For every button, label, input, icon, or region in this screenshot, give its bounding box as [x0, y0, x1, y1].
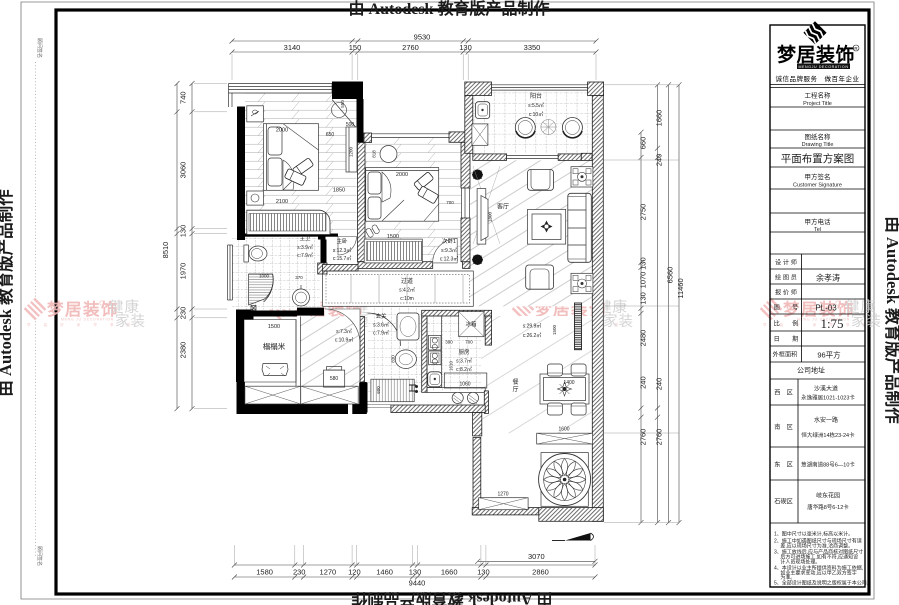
- svg-text:2750: 2750: [639, 204, 648, 221]
- svg-text:诚信品牌服务 做百年企业: 诚信品牌服务 做百年企业: [776, 74, 860, 83]
- svg-text:南 区: 南 区: [774, 423, 793, 431]
- svg-text:西 区: 西 区: [774, 390, 793, 397]
- svg-text:c:12.3㎡: c:12.3㎡: [440, 256, 459, 263]
- svg-text:130: 130: [409, 568, 422, 577]
- svg-text:由 Autodesk 教育版产品制作: 由 Autodesk 教育版产品制作: [883, 216, 899, 424]
- svg-text:顾问签名: 顾问签名: [36, 546, 43, 566]
- svg-text:s:4.2㎡: s:4.2㎡: [399, 287, 415, 294]
- svg-text:3140: 3140: [284, 43, 301, 52]
- svg-text:家装: 家装: [603, 313, 634, 330]
- svg-text:1580: 1580: [256, 568, 273, 577]
- svg-text:c:8.2㎡: c:8.2㎡: [456, 366, 472, 373]
- svg-text:740: 740: [179, 91, 188, 104]
- svg-text:主卧: 主卧: [336, 237, 348, 245]
- svg-text:设 计 师: 设 计 师: [775, 259, 797, 267]
- svg-text:1500: 1500: [552, 324, 557, 335]
- svg-text:s:7.3㎡: s:7.3㎡: [336, 328, 352, 335]
- svg-text:700: 700: [446, 200, 454, 205]
- svg-text:公司地址: 公司地址: [797, 366, 825, 375]
- svg-text:c:15.7㎡: c:15.7㎡: [333, 255, 352, 262]
- svg-text:8510: 8510: [161, 242, 170, 259]
- svg-text:1460: 1460: [376, 568, 393, 577]
- svg-text:240: 240: [655, 378, 664, 391]
- svg-text:c:7.9㎡: c:7.9㎡: [297, 252, 313, 259]
- svg-text:1070: 1070: [639, 272, 648, 289]
- svg-text:葱湖南道88号6—10卡: 葱湖南道88号6—10卡: [801, 461, 855, 469]
- svg-text:6560: 6560: [666, 267, 675, 284]
- svg-text:96平方: 96平方: [817, 350, 841, 360]
- svg-text:130: 130: [639, 292, 648, 305]
- svg-text:2000: 2000: [276, 128, 288, 134]
- svg-text:5、全部设计图纸及说明之版权属于本公司,: 5、全部设计图纸及说明之版权属于本公司,: [774, 580, 868, 587]
- svg-text:1200: 1200: [349, 146, 354, 157]
- svg-text:餐: 餐: [512, 378, 518, 386]
- svg-text:Project Title: Project Title: [803, 101, 832, 107]
- svg-text:1、图中尺寸以毫米计,标高以米计。: 1、图中尺寸以毫米计,标高以米计。: [774, 531, 853, 538]
- svg-text:顾问签名: 顾问签名: [36, 38, 43, 58]
- svg-text:2760: 2760: [655, 429, 664, 446]
- svg-text:梦居装饰: 梦居装饰: [777, 43, 855, 66]
- svg-text:厅: 厅: [512, 387, 518, 394]
- svg-text:Customer Signature: Customer Signature: [793, 183, 842, 189]
- svg-text:2760: 2760: [402, 43, 419, 52]
- svg-text:2480: 2480: [639, 330, 648, 347]
- svg-text:s:12.3㎡: s:12.3㎡: [333, 247, 352, 254]
- svg-text:1500: 1500: [387, 234, 399, 240]
- svg-text:370: 370: [295, 275, 303, 280]
- svg-text:主卫: 主卫: [299, 234, 311, 242]
- svg-text:550: 550: [340, 100, 345, 108]
- svg-text:由 Autodesk 教育版产品制作: 由 Autodesk 教育版产品制作: [349, 0, 550, 18]
- svg-text:390: 390: [445, 340, 453, 345]
- svg-text:c:26.2㎡: c:26.2㎡: [523, 332, 542, 339]
- svg-text:s:3.9㎡: s:3.9㎡: [297, 244, 313, 251]
- svg-text:1400: 1400: [563, 380, 574, 386]
- svg-text:2860: 2860: [532, 568, 549, 577]
- svg-text:绘 图 员: 绘 图 员: [775, 274, 797, 282]
- svg-text:660: 660: [639, 137, 648, 150]
- svg-text:家装: 家装: [115, 313, 146, 330]
- svg-text:岐东花园: 岐东花园: [816, 492, 840, 500]
- svg-text:家装: 家装: [851, 313, 882, 330]
- svg-text:阳台: 阳台: [530, 92, 542, 100]
- svg-text:1500: 1500: [268, 324, 280, 330]
- svg-text:9440: 9440: [409, 579, 426, 588]
- svg-text:9530: 9530: [414, 32, 431, 41]
- svg-text:c:7.9㎡: c:7.9㎡: [373, 330, 389, 337]
- svg-text:日 期: 日 期: [774, 335, 799, 343]
- svg-text:余孝涛: 余孝涛: [816, 273, 840, 283]
- svg-text:恒大绿洲14栋23-24卡: 恒大绿洲14栋23-24卡: [801, 431, 855, 439]
- svg-text:1270: 1270: [497, 492, 508, 498]
- svg-text:东 区: 东 区: [774, 461, 793, 469]
- svg-text:平面布置方案图: 平面布置方案图: [781, 152, 855, 165]
- svg-text:c:10.9㎡: c:10.9㎡: [335, 337, 354, 344]
- svg-text:Drawing Title: Drawing Title: [802, 142, 834, 148]
- svg-text:永逸雅居1021-1023卡: 永逸雅居1021-1023卡: [801, 394, 855, 402]
- svg-text:130: 130: [639, 257, 648, 270]
- svg-text:计人员现场处理。: 计人员现场处理。: [774, 559, 820, 566]
- svg-text:1660: 1660: [655, 110, 664, 127]
- svg-text:甲方签名: 甲方签名: [805, 172, 831, 181]
- svg-text:报 价 师: 报 价 师: [775, 289, 797, 297]
- svg-text:s:3.7㎡: s:3.7㎡: [456, 358, 472, 365]
- svg-text:Tel: Tel: [814, 227, 821, 233]
- svg-text:1970: 1970: [179, 263, 188, 280]
- svg-text:2760: 2760: [639, 429, 648, 446]
- svg-text:沙溪大道: 沙溪大道: [814, 385, 838, 393]
- svg-text:厨房: 厨房: [458, 348, 470, 356]
- svg-text:s:29.9㎡: s:29.9㎡: [523, 323, 542, 330]
- svg-text:外框面积: 外框面积: [773, 351, 798, 359]
- svg-text:2000: 2000: [396, 172, 408, 178]
- svg-text:图纸名称: 图纸名称: [805, 132, 832, 141]
- svg-text:s:5.5㎡: s:5.5㎡: [528, 102, 544, 109]
- svg-text:1270: 1270: [320, 568, 337, 577]
- svg-text:1:75: 1:75: [820, 316, 843, 331]
- svg-text:s:9.3㎡: s:9.3㎡: [441, 247, 457, 254]
- svg-text:工程名称: 工程名称: [805, 91, 832, 100]
- svg-text:由 Autodesk 教育版产品制作: 由 Autodesk 教育版产品制作: [352, 590, 553, 605]
- svg-text:818: 818: [372, 150, 377, 158]
- svg-text:1600: 1600: [558, 427, 569, 433]
- svg-text:1000: 1000: [259, 274, 270, 279]
- svg-text:3070: 3070: [528, 552, 545, 561]
- svg-text:3060: 3060: [179, 162, 188, 179]
- svg-text:580: 580: [330, 376, 339, 382]
- svg-text:830: 830: [391, 355, 396, 363]
- svg-text:PL-03: PL-03: [815, 304, 837, 313]
- svg-text:甲方电话: 甲方电话: [805, 217, 832, 226]
- svg-text:比 例: 比 例: [774, 320, 799, 328]
- svg-text:s:3.6㎡: s:3.6㎡: [373, 322, 389, 329]
- svg-text:2100: 2100: [276, 199, 288, 205]
- svg-text:240: 240: [639, 376, 648, 389]
- svg-text:MENGJU DECORATION: MENGJU DECORATION: [798, 65, 848, 69]
- svg-text:120: 120: [348, 568, 361, 577]
- svg-text:图 号: 图 号: [774, 305, 799, 312]
- svg-text:过道: 过道: [401, 277, 413, 285]
- svg-text:2380: 2380: [179, 342, 188, 359]
- svg-text:1800: 1800: [488, 211, 493, 222]
- svg-text:11460: 11460: [676, 278, 685, 298]
- svg-text:230: 230: [293, 568, 306, 577]
- svg-text:130: 130: [179, 225, 188, 238]
- svg-text:次卧1: 次卧1: [442, 237, 456, 245]
- svg-text:650: 650: [326, 132, 335, 138]
- svg-text:c:10㎡: c:10㎡: [529, 111, 543, 118]
- svg-text:唐华路8号6-12卡: 唐华路8号6-12卡: [807, 503, 849, 511]
- svg-text:130: 130: [459, 43, 472, 52]
- svg-text:冰箱: 冰箱: [465, 320, 477, 328]
- svg-text:1060: 1060: [459, 382, 470, 388]
- svg-text:客厅: 客厅: [497, 203, 509, 211]
- svg-text:1850: 1850: [333, 188, 345, 194]
- svg-text:c:10m: c:10m: [400, 296, 414, 302]
- svg-text:1660: 1660: [441, 568, 458, 577]
- svg-text:水安一路: 水安一路: [814, 416, 838, 424]
- svg-text:榻榻米: 榻榻米: [263, 341, 286, 351]
- svg-text:600: 600: [376, 386, 381, 394]
- svg-text:石碶区: 石碶区: [774, 498, 793, 506]
- svg-text:MENG JU DECORATION: MENG JU DECORATION: [61, 318, 114, 322]
- svg-text:玄关: 玄关: [375, 312, 387, 320]
- svg-text:130: 130: [477, 568, 490, 577]
- svg-text:由 Autodesk 教育版产品制作: 由 Autodesk 教育版产品制作: [0, 189, 15, 397]
- svg-text:3350: 3350: [524, 43, 541, 52]
- svg-text:150: 150: [349, 43, 362, 52]
- svg-text:1610: 1610: [449, 360, 454, 371]
- svg-text:差,应以现场尺寸为准,洽商调整。: 差,应以现场尺寸为准,洽商调整。: [774, 543, 853, 550]
- svg-text:230: 230: [179, 307, 188, 320]
- svg-text:700: 700: [465, 340, 473, 345]
